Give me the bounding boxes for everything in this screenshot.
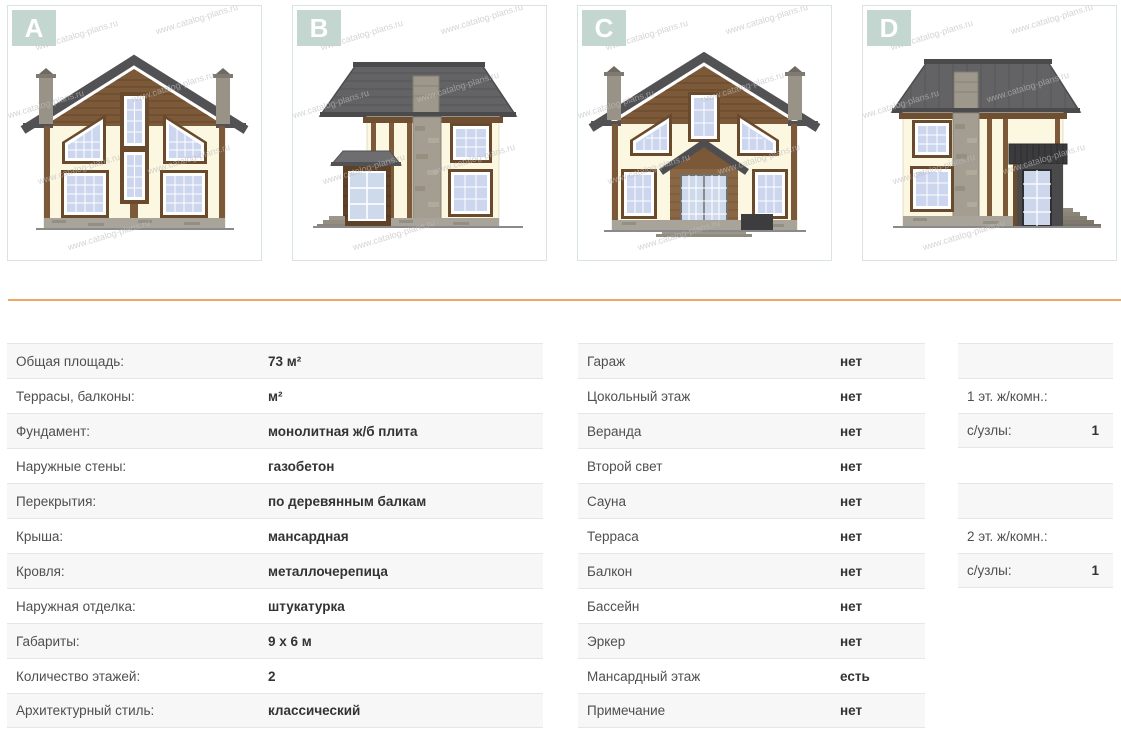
spec-label: Эркер bbox=[578, 634, 840, 649]
spec-value: нет bbox=[840, 599, 925, 614]
table-row: Саунанет bbox=[578, 483, 925, 518]
spec-label: Наружные стены: bbox=[7, 459, 268, 474]
spec-value: мансардная bbox=[268, 529, 543, 544]
table-row: Террасы, балконы:м² bbox=[7, 378, 543, 413]
table-row bbox=[958, 483, 1113, 518]
spec-value: 73 м² bbox=[268, 354, 543, 369]
spec-value: газобетон bbox=[268, 459, 543, 474]
specs-table-features: ГаражнетЦокольный этажнетВеранданетВторо… bbox=[578, 343, 925, 728]
spec-value: нет bbox=[840, 389, 925, 404]
spec-label: Наружная отделка: bbox=[7, 599, 268, 614]
spec-label: Габариты: bbox=[7, 634, 268, 649]
table-row: Примечаниенет bbox=[578, 693, 925, 728]
spec-value: нет bbox=[840, 459, 925, 474]
specs-floor1-group: 1 эт. ж/комн.:с/узлы:1 bbox=[958, 343, 1113, 448]
spec-value: классический bbox=[268, 703, 543, 718]
spec-value: нет bbox=[840, 564, 925, 579]
spec-value: нет bbox=[840, 634, 925, 649]
house-plan-page: www.catalog-plans.ru www.catalog-plans.r… bbox=[0, 0, 1121, 738]
spec-label: с/узлы: bbox=[958, 423, 1091, 438]
table-row: Бассейннет bbox=[578, 588, 925, 623]
table-row bbox=[958, 343, 1113, 378]
table-row: 1 эт. ж/комн.: bbox=[958, 378, 1113, 413]
spec-value: 1 bbox=[1091, 423, 1113, 438]
spec-value: металлочерепица bbox=[268, 564, 543, 579]
spec-label: Гараж bbox=[578, 354, 840, 369]
spec-label: Терраса bbox=[578, 529, 840, 544]
spec-value: 9 x 6 м bbox=[268, 634, 543, 649]
table-row: Гаражнет bbox=[578, 343, 925, 378]
specs-floor2-group: 2 эт. ж/комн.:с/узлы:1 bbox=[958, 483, 1113, 588]
spec-value: нет bbox=[840, 494, 925, 509]
facade-label-c: C bbox=[582, 10, 626, 46]
specs-table-general: Общая площадь:73 м²Террасы, балконы:м²Фу… bbox=[7, 343, 543, 728]
table-row: Балконнет bbox=[578, 553, 925, 588]
spec-label: Цокольный этаж bbox=[578, 389, 840, 404]
spec-value: нет bbox=[840, 354, 925, 369]
spec-value: 2 bbox=[268, 669, 543, 684]
spec-value: нет bbox=[840, 424, 925, 439]
facade-a-thumbnail[interactable]: www.catalog-plans.ru www.catalog-plans.r… bbox=[7, 5, 262, 261]
table-row: Архитектурный стиль:классический bbox=[7, 693, 543, 728]
table-row: Веранданет bbox=[578, 413, 925, 448]
spec-label: Фундамент: bbox=[7, 424, 268, 439]
spec-label: Архитектурный стиль: bbox=[7, 703, 268, 718]
spec-label: Кровля: bbox=[7, 564, 268, 579]
spec-label: Крыша: bbox=[7, 529, 268, 544]
spec-value: м² bbox=[268, 389, 543, 404]
table-row: Габариты:9 x 6 м bbox=[7, 623, 543, 658]
table-row: Перекрытия:по деревянным балкам bbox=[7, 483, 543, 518]
table-row: Террасанет bbox=[578, 518, 925, 553]
spec-label: Перекрытия: bbox=[7, 494, 268, 509]
table-row: 2 эт. ж/комн.: bbox=[958, 518, 1113, 553]
spec-label: 1 эт. ж/комн.: bbox=[958, 389, 1099, 404]
table-row: Мансардный этажесть bbox=[578, 658, 925, 693]
spec-label: Общая площадь: bbox=[7, 354, 268, 369]
spec-value: монолитная ж/б плита bbox=[268, 424, 543, 439]
table-row: Количество этажей:2 bbox=[7, 658, 543, 693]
spec-value: по деревянным балкам bbox=[268, 494, 543, 509]
spec-label: Количество этажей: bbox=[7, 669, 268, 684]
spec-label: Примечание bbox=[578, 703, 840, 718]
table-row: с/узлы:1 bbox=[958, 553, 1113, 588]
table-row: Наружная отделка:штукатурка bbox=[7, 588, 543, 623]
table-row: с/узлы:1 bbox=[958, 413, 1113, 448]
table-row: Крыша:мансардная bbox=[7, 518, 543, 553]
spec-value: штукатурка bbox=[268, 599, 543, 614]
specs-table-rooms: 1 эт. ж/комн.:с/узлы:1 2 эт. ж/комн.:с/у… bbox=[958, 343, 1113, 588]
table-row: Общая площадь:73 м² bbox=[7, 343, 543, 378]
spec-label: Бассейн bbox=[578, 599, 840, 614]
spec-label: Балкон bbox=[578, 564, 840, 579]
spec-label: с/узлы: bbox=[958, 563, 1091, 578]
rooms-group-gap bbox=[958, 448, 1113, 483]
facade-label-d: D bbox=[867, 10, 911, 46]
facade-d-thumbnail[interactable]: www.catalog-plans.ru www.catalog-plans.r… bbox=[862, 5, 1117, 261]
facade-label-a: A bbox=[12, 10, 56, 46]
spec-label: Веранда bbox=[578, 424, 840, 439]
facade-c-thumbnail[interactable]: www.catalog-plans.ru www.catalog-plans.r… bbox=[577, 5, 832, 261]
facade-label-b: B bbox=[297, 10, 341, 46]
spec-label: Мансардный этаж bbox=[578, 669, 840, 684]
table-row: Кровля:металлочерепица bbox=[7, 553, 543, 588]
spec-label: Второй свет bbox=[578, 459, 840, 474]
table-row: Цокольный этажнет bbox=[578, 378, 925, 413]
table-row: Наружные стены:газобетон bbox=[7, 448, 543, 483]
spec-label: 2 эт. ж/комн.: bbox=[958, 529, 1099, 544]
table-row: Фундамент:монолитная ж/б плита bbox=[7, 413, 543, 448]
spec-value: 1 bbox=[1091, 563, 1113, 578]
table-row: Эркернет bbox=[578, 623, 925, 658]
spec-value: есть bbox=[840, 669, 925, 684]
section-divider bbox=[8, 299, 1121, 301]
facade-b-thumbnail[interactable]: www.catalog-plans.ru www.catalog-plans.r… bbox=[292, 5, 547, 261]
spec-label: Сауна bbox=[578, 494, 840, 509]
spec-value: нет bbox=[840, 529, 925, 544]
facade-gallery: www.catalog-plans.ru www.catalog-plans.r… bbox=[7, 5, 1117, 261]
spec-label: Террасы, балконы: bbox=[7, 389, 268, 404]
table-row: Второй светнет bbox=[578, 448, 925, 483]
spec-value: нет bbox=[840, 703, 925, 718]
